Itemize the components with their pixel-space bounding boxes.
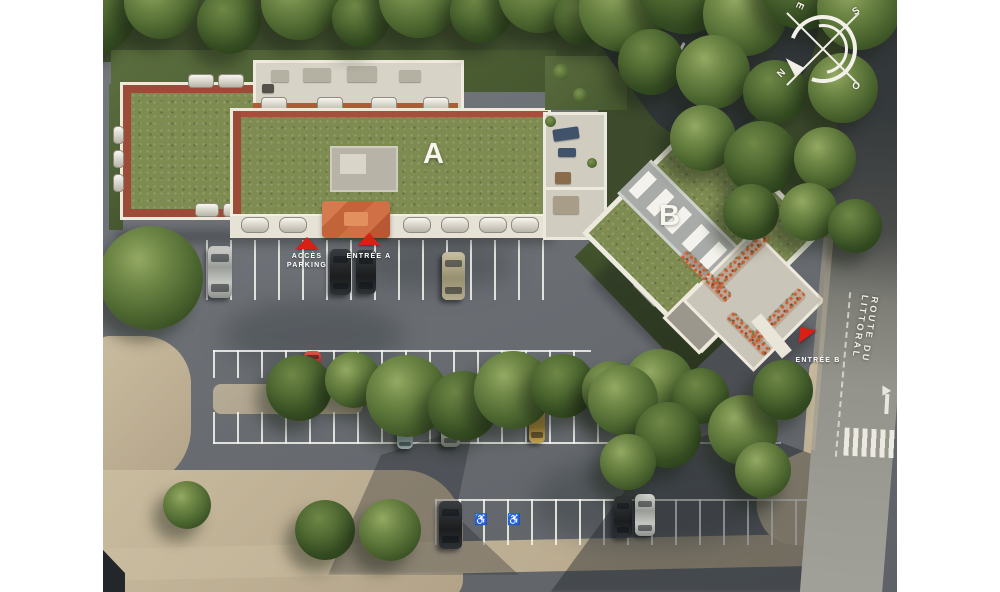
roof-vent [218, 74, 244, 88]
parked-car [439, 501, 462, 549]
site-plan-render: ♿ ♿ A [103, 0, 897, 592]
facade-vent [511, 217, 539, 233]
building-b-label: B [659, 200, 680, 233]
potted-plant [545, 116, 556, 127]
roof-access-hut [330, 146, 398, 192]
wheelchair-icon: ♿ [507, 515, 521, 526]
tree [103, 226, 203, 330]
compass-north-label: N [775, 67, 788, 80]
parked-car [442, 252, 465, 300]
parked-car [635, 494, 655, 536]
parking-access-label: ACCÈS PARKING [277, 252, 337, 270]
tree [359, 499, 421, 561]
tree [828, 199, 882, 253]
facade-vent [241, 217, 269, 233]
arrow-stem [884, 394, 889, 414]
roof-access-hut-top [340, 154, 366, 174]
terrace-furniture [347, 66, 377, 82]
compass-south-label: S [850, 5, 862, 18]
tree [266, 355, 332, 421]
compass-rose: E S N O [776, 2, 870, 96]
tree [723, 184, 779, 240]
facade-vent [279, 217, 307, 233]
tree [794, 127, 856, 189]
terrace-grill [262, 84, 274, 93]
roof-vent [195, 203, 219, 217]
tree [735, 442, 791, 498]
parked-car [208, 246, 232, 298]
aerial-site-plan: ♿ ♿ A [0, 0, 1000, 592]
entrance-a-label: ENTRÉE A [339, 252, 399, 261]
wheelchair-icon: ♿ [474, 515, 488, 526]
roof-vent [188, 74, 214, 88]
roof-vent [113, 150, 124, 168]
tree [753, 360, 813, 420]
terrace-divider [546, 187, 604, 190]
compass-east-label: E [793, 0, 806, 11]
sand-path [103, 336, 191, 488]
parked-car [614, 496, 632, 538]
parking-access-marker-icon [296, 237, 318, 249]
terrace-table [553, 196, 579, 214]
entrance-a-marker-icon [358, 233, 380, 245]
compass-west-label: O [851, 80, 861, 93]
terrace-lounge [558, 148, 576, 157]
roof-vent [113, 174, 124, 192]
garden-bush [553, 64, 569, 80]
facade-vent [403, 217, 431, 233]
facade-vent [441, 217, 469, 233]
potted-plant [587, 158, 597, 168]
canopy-ridge [344, 212, 368, 226]
building-a-label: A [423, 138, 444, 171]
tree [600, 434, 656, 490]
tree [676, 35, 750, 109]
tree [618, 29, 684, 95]
entrance-b-label: ENTRÉE B [785, 356, 851, 365]
tree [295, 500, 355, 560]
roof-vent [113, 126, 124, 144]
tree [724, 121, 798, 195]
tree [163, 481, 211, 529]
garden-bush [573, 88, 587, 102]
terrace-furniture [399, 70, 421, 82]
terrace-furniture [303, 68, 331, 82]
terrace-furniture [271, 70, 289, 82]
lane-turn-arrow [879, 387, 894, 416]
facade-vent [479, 217, 507, 233]
crosswalk [843, 428, 897, 459]
terrace-table [555, 172, 571, 184]
